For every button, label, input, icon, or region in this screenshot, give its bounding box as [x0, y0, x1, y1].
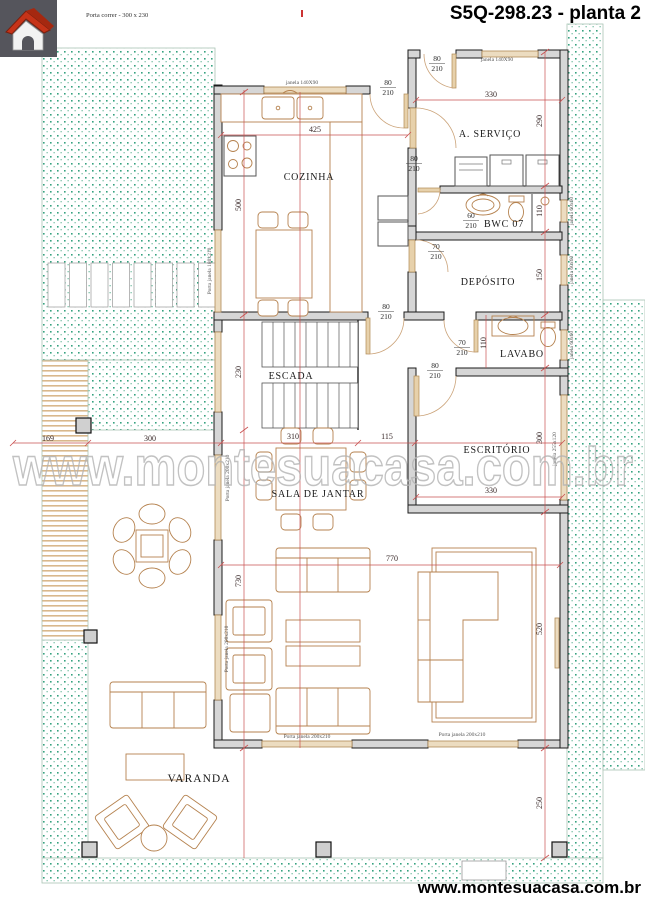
armchair — [162, 794, 218, 850]
dim-kitchen-width: 425 — [309, 125, 321, 134]
chair — [139, 504, 165, 524]
chair — [258, 212, 278, 228]
svg-text:80: 80 — [384, 78, 392, 87]
dim-living-right-depth: 520 — [535, 623, 544, 635]
toilet-tank — [509, 196, 524, 202]
fridge — [378, 196, 408, 220]
dim-lavabo-depth: 110 — [479, 337, 488, 349]
door-swing — [370, 94, 404, 128]
svg-text:60: 60 — [467, 211, 475, 220]
chair — [165, 514, 195, 547]
window-sill — [555, 618, 559, 668]
stair-flight-lower — [262, 383, 358, 428]
chair — [288, 212, 308, 228]
wall-segment — [214, 540, 222, 615]
dim-service-width: 330 — [485, 90, 497, 99]
page-title: S5Q-298.23 - planta 2 — [450, 3, 641, 24]
window-label: Porta janela 200x210 — [439, 732, 486, 738]
door-leaf — [409, 240, 415, 272]
wall-segment — [404, 312, 444, 320]
window-label: janela 60x60 — [569, 256, 575, 286]
column — [316, 842, 331, 857]
room-label-cozinha: COZINHA — [284, 172, 335, 183]
wall-segment — [408, 272, 416, 312]
door-leaf — [452, 54, 456, 88]
laundry-tank — [455, 157, 487, 186]
wall-segment — [214, 86, 264, 94]
svg-text:210: 210 — [382, 88, 394, 97]
dim-kitchen-depth: 500 — [234, 199, 243, 211]
door-leaf — [414, 376, 419, 416]
grass-strip-left — [42, 640, 88, 858]
column — [552, 842, 567, 857]
door-swing — [416, 376, 456, 416]
wall-segment — [408, 52, 416, 108]
room-label-varanda: VARANDA — [167, 773, 230, 785]
room-label-deposito: DEPÓSITO — [461, 276, 516, 288]
stair-flight-upper — [262, 322, 358, 367]
ottoman — [230, 694, 270, 732]
dim-service-depth: 290 — [535, 115, 544, 127]
window-label: janela 140X90 — [285, 80, 318, 86]
door-swing — [418, 190, 440, 214]
chair — [288, 300, 308, 316]
dim-deposito-depth: 150 — [535, 269, 544, 281]
chair — [139, 568, 165, 588]
window-label: Porta janela 180x210 — [207, 247, 213, 294]
window-opening — [561, 330, 567, 360]
door-leaf — [404, 94, 408, 128]
window-label: janela 140X90 — [480, 57, 513, 63]
room-label-lavabo: LAVABO — [500, 349, 544, 360]
svg-text:80: 80 — [382, 302, 390, 311]
wall-segment — [346, 86, 370, 94]
svg-text:80: 80 — [431, 361, 439, 370]
washer — [490, 155, 523, 186]
svg-text:80: 80 — [410, 154, 418, 163]
svg-text:70: 70 — [458, 338, 466, 347]
wood-deck — [42, 360, 88, 640]
svg-text:210: 210 — [380, 312, 392, 321]
column — [84, 630, 97, 643]
room-label-servico: A. SERVIÇO — [459, 129, 521, 140]
wall-segment — [416, 232, 562, 240]
coffee-table — [286, 646, 360, 666]
svg-text:210: 210 — [465, 221, 477, 230]
dim-stairs-depth: 230 — [234, 366, 243, 378]
chair — [165, 546, 195, 579]
kitchen-island — [330, 122, 362, 312]
service-furniture — [455, 155, 559, 186]
door-annotation: Porta correr - 300 x 230 — [86, 12, 148, 19]
room-label-bwc: BWC 07 — [484, 219, 524, 230]
wall-segment — [456, 50, 482, 58]
kitchen-table — [256, 230, 312, 298]
door-swing — [368, 318, 404, 354]
dim-terrace-depth: 250 — [535, 797, 544, 809]
chair — [109, 546, 139, 579]
svg-text:210: 210 — [431, 64, 443, 73]
wall-segment — [214, 740, 262, 748]
wall-segment — [408, 505, 568, 513]
chair — [258, 300, 278, 316]
sofa-3seat — [276, 688, 370, 734]
svg-text:210: 210 — [429, 371, 441, 380]
window-opening — [262, 741, 352, 747]
window-label: janela 60x60 — [569, 331, 575, 361]
living-furniture — [226, 548, 536, 734]
logo-door-arch-icon — [22, 36, 34, 50]
lavabo-furniture — [492, 316, 556, 347]
oven — [378, 222, 408, 246]
svg-text:210: 210 — [430, 252, 442, 261]
window-label: Porta janela 200x210 — [224, 625, 230, 672]
door-label-70x210: 70 210 — [428, 242, 444, 261]
red-marker — [301, 10, 303, 17]
dim-bwc-depth: 110 — [535, 205, 544, 217]
floorplan-drawing: 425 330 310 115 169 300 770 330 500 230 … — [0, 0, 645, 900]
floorplan-page: 425 330 310 115 169 300 770 330 500 230 … — [0, 0, 645, 900]
window-opening — [561, 255, 567, 285]
door-label-70x210: 70 210 — [454, 338, 470, 357]
svg-text:80: 80 — [433, 54, 441, 63]
door-leaf — [418, 188, 440, 192]
wall-segment — [560, 50, 568, 200]
column — [76, 418, 91, 433]
dryer — [526, 155, 559, 186]
side-table — [141, 825, 167, 851]
window-label: Porta janela 200x210 — [284, 734, 331, 740]
grass-area-top-left — [42, 48, 215, 360]
door-swing — [416, 108, 456, 148]
door-leaf — [366, 318, 370, 354]
wall-segment — [408, 226, 416, 240]
room-label-escada: ESCADA — [269, 371, 314, 382]
window-opening — [215, 332, 221, 412]
column — [82, 842, 97, 857]
chair — [281, 514, 301, 530]
door-label-80x210: 80 210 — [380, 78, 396, 97]
sofa-3seat — [276, 548, 370, 592]
watermark-text: www.montesuacasa.com.br — [12, 437, 633, 497]
window-opening — [428, 741, 518, 747]
svg-text:210: 210 — [456, 348, 468, 357]
grass-area-right — [603, 300, 645, 770]
montesuacasa-logo — [0, 0, 57, 57]
dim-living-width: 770 — [386, 554, 398, 563]
wall-segment — [352, 740, 428, 748]
door-leaf — [410, 108, 416, 148]
coffee-table — [286, 620, 360, 642]
window-opening — [215, 230, 221, 312]
window-opening — [215, 615, 221, 700]
svg-text:70: 70 — [432, 242, 440, 251]
wall-segment — [560, 360, 568, 395]
dim-living-depth: 730 — [234, 575, 243, 587]
window-label: janela 60x60 — [569, 197, 575, 227]
door-label-80x210: 80 210 — [427, 361, 443, 380]
wall-segment — [560, 500, 568, 748]
kitchen-counter — [221, 94, 362, 122]
chair — [313, 514, 333, 530]
varanda-furniture — [94, 504, 218, 851]
door-leaf — [474, 320, 478, 352]
toilet-bowl — [541, 328, 556, 347]
window-opening — [264, 87, 346, 93]
chair — [109, 514, 139, 547]
sofa-3seat — [110, 682, 206, 728]
window-opening — [561, 200, 567, 222]
door-label-80x210: 80 210 — [378, 302, 394, 321]
door-label-80x210: 80 210 — [429, 54, 445, 73]
wall-segment — [456, 368, 568, 376]
site-url: www.montesuacasa.com.br — [417, 878, 642, 897]
wall-segment — [560, 285, 568, 330]
grass-area-left-mid — [88, 360, 215, 430]
wall-segment — [408, 50, 420, 58]
svg-text:210: 210 — [408, 164, 420, 173]
